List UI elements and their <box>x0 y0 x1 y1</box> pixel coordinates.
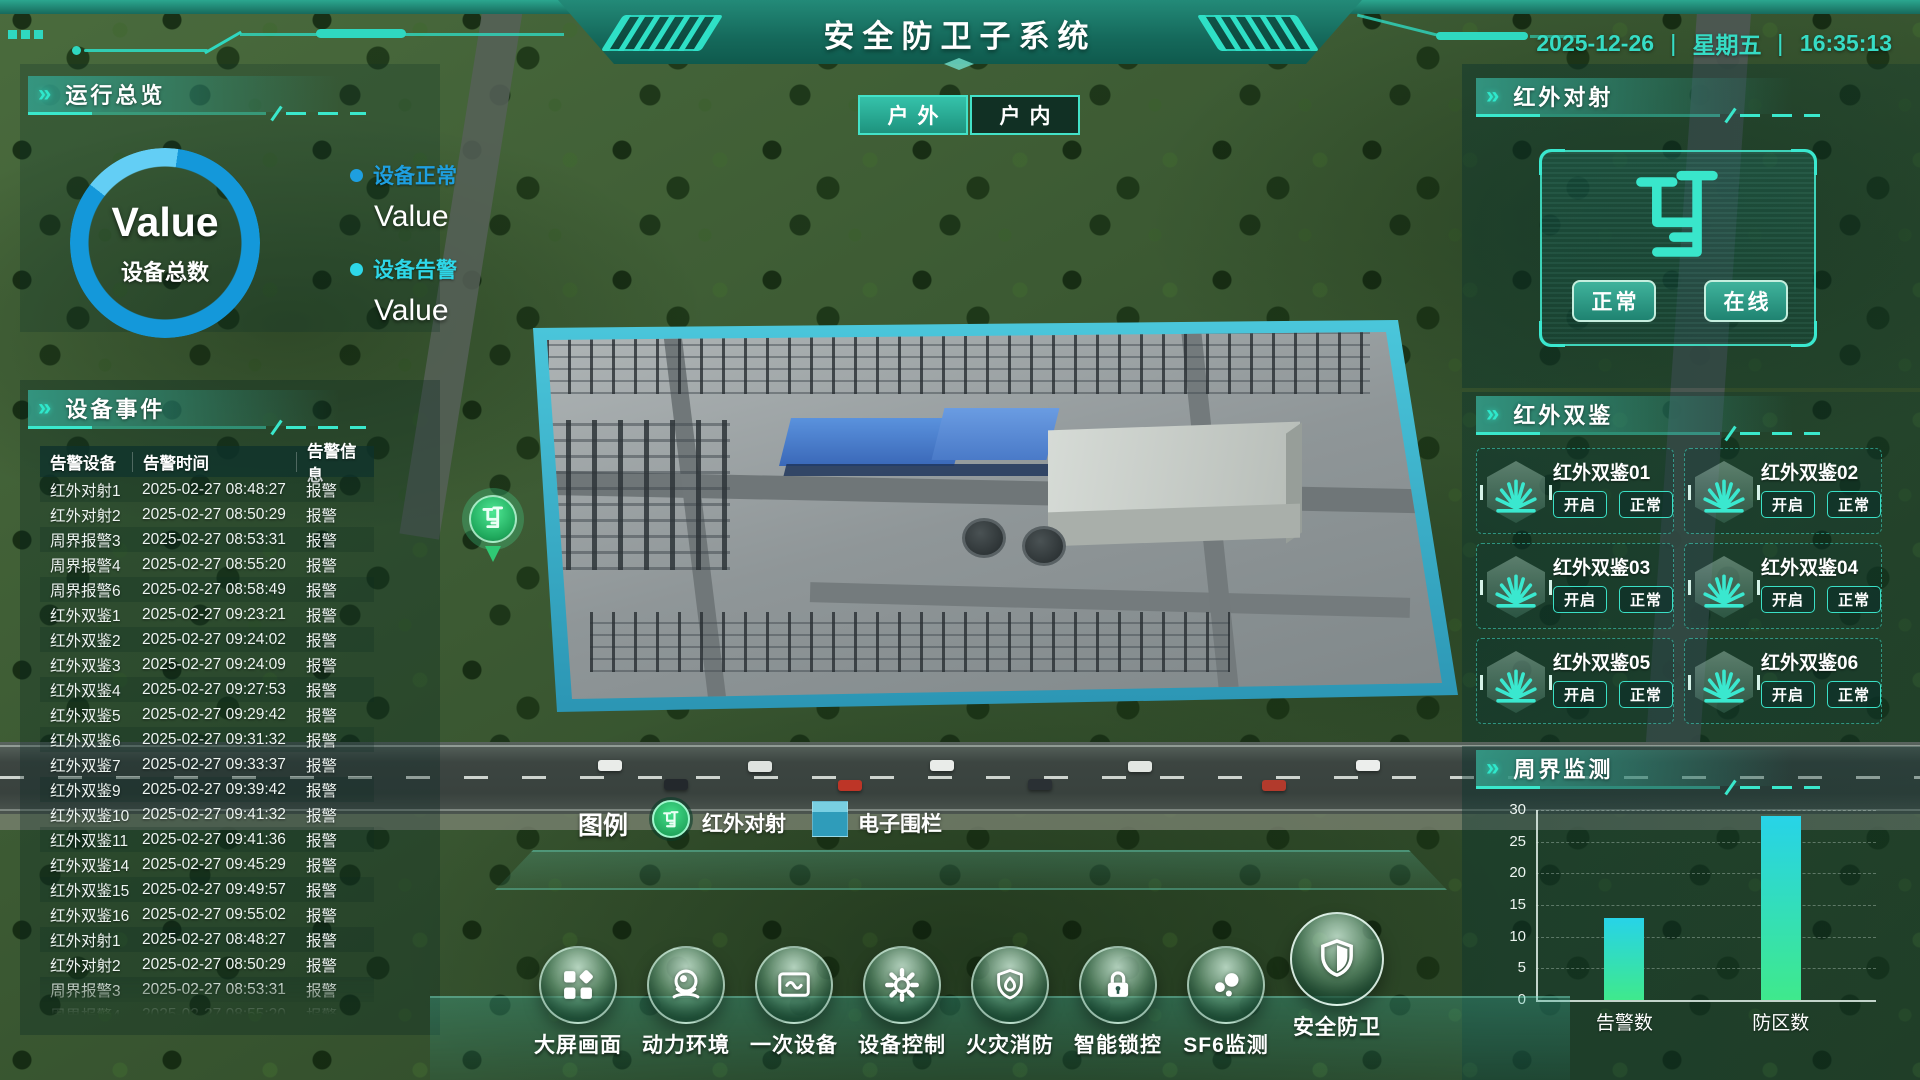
x-category-label: 告警数 <box>1574 1008 1674 1035</box>
table-row[interactable]: 周界报警42025-02-27 08:55:20报警 <box>40 552 374 577</box>
nav-item-sf6[interactable]: SF6监测 <box>1171 946 1281 1059</box>
dual-sensor-icon <box>1695 556 1753 618</box>
yard-pavement <box>500 300 1480 730</box>
car <box>1262 780 1286 791</box>
nav-item-label: 动力环境 <box>631 1029 741 1059</box>
detector-buttons: 开启正常 <box>1553 681 1673 708</box>
date-text: 2025-12-26 <box>1536 30 1654 57</box>
beam-device-card[interactable]: 正常 在线 <box>1540 150 1816 346</box>
dual-sensor-icon <box>1695 461 1753 523</box>
detector-name: 红外双鉴04 <box>1761 553 1858 580</box>
table-row[interactable]: 红外对射12025-02-27 08:48:27报警 <box>40 477 374 502</box>
alarm-message: 报警 <box>296 979 366 1001</box>
alarm-message: 报警 <box>296 729 366 751</box>
grid-icon <box>539 946 617 1024</box>
alarm-time: 2025-02-27 09:41:32 <box>132 806 296 824</box>
weekday-text: 星期五 <box>1692 26 1761 60</box>
alarm-time: 2025-02-27 09:27:53 <box>132 681 296 699</box>
legend-item-beam[interactable]: 红外对射 <box>702 808 786 838</box>
gridline <box>1536 873 1876 874</box>
open-button[interactable]: 开启 <box>1553 681 1607 708</box>
camera-icon <box>647 946 725 1024</box>
detector-buttons: 开启正常 <box>1761 681 1881 708</box>
chevron-icon: » <box>1486 402 1499 426</box>
events-table-header: 告警设备 告警时间 告警信息 <box>40 446 374 477</box>
panel-dual-detect: » 红外双鉴 <box>1476 396 1820 432</box>
alarm-device: 周界报警3 <box>40 529 132 551</box>
alarm-device: 周界报警4 <box>40 554 132 576</box>
y-tick-label: 15 <box>1496 896 1526 913</box>
alarm-device: 红外双鉴3 <box>40 654 132 676</box>
alarm-message: 报警 <box>296 1004 366 1016</box>
stat-bullet-0 <box>350 169 363 182</box>
chart-bar[interactable] <box>1604 918 1644 1000</box>
y-tick-label: 20 <box>1496 864 1526 881</box>
stat-value: Value <box>374 294 457 328</box>
alarm-message: 报警 <box>296 829 366 851</box>
table-row[interactable]: 红外双鉴142025-02-27 09:45:29报警 <box>40 852 374 877</box>
dual-detector-card[interactable]: 红外双鉴02开启正常 <box>1684 448 1882 534</box>
dual-sensor-icon <box>1487 556 1545 618</box>
alarm-message: 报警 <box>296 504 366 526</box>
status-button[interactable]: 正常 <box>1619 491 1673 518</box>
alarm-device: 红外双鉴15 <box>40 879 132 901</box>
alarm-message: 报警 <box>296 479 366 501</box>
corner-square-icon <box>8 30 17 39</box>
blue-roof-building-2 <box>932 408 1060 460</box>
nav-item-fire[interactable]: 火灾消防 <box>955 946 1065 1059</box>
table-row[interactable]: 红外双鉴42025-02-27 09:27:53报警 <box>40 677 374 702</box>
nav-item-label: 大屏画面 <box>523 1029 633 1059</box>
table-row[interactable]: 红外对射12025-02-27 08:48:27报警 <box>40 927 374 952</box>
gridline <box>1536 810 1876 811</box>
y-tick-label: 30 <box>1496 801 1526 818</box>
dual-grid: 红外双鉴01开启正常红外双鉴02开启正常红外双鉴03开启正常红外双鉴04开启正常… <box>1476 448 1882 728</box>
table-row[interactable]: 红外双鉴62025-02-27 09:31:32报警 <box>40 727 374 752</box>
time-text: 16:35:13 <box>1800 30 1892 57</box>
frame-icon <box>755 946 833 1024</box>
dual-detector-card[interactable]: 红外双鉴04开启正常 <box>1684 543 1882 629</box>
panel-underline <box>28 426 366 429</box>
nav-item-shield[interactable]: 安全防卫 <box>1282 912 1392 1041</box>
dual-sensor-icon <box>1695 651 1753 713</box>
car <box>598 760 622 771</box>
alarm-message: 报警 <box>296 779 366 801</box>
alarm-device: 红外双鉴16 <box>40 904 132 926</box>
y-tick-label: 10 <box>1496 928 1526 945</box>
car <box>664 779 688 790</box>
chevron-icon: » <box>1486 756 1499 780</box>
nav-item-label: SF6监测 <box>1171 1029 1281 1059</box>
alarm-time: 2025-02-27 08:48:27 <box>132 931 296 949</box>
alarm-message: 报警 <box>296 754 366 776</box>
panel-title: 红外双鉴 <box>1513 398 1613 430</box>
status-button[interactable]: 正常 <box>1619 586 1673 613</box>
alarm-device: 红外双鉴9 <box>40 779 132 801</box>
alarm-time: 2025-02-27 08:55:20 <box>132 556 296 574</box>
alarm-time: 2025-02-27 09:24:09 <box>132 656 296 674</box>
status-button[interactable]: 正常 <box>1827 586 1881 613</box>
datetime: 2025-12-26 | 星期五 | 16:35:13 <box>1536 26 1892 60</box>
alarm-time: 2025-02-27 08:48:27 <box>132 481 296 499</box>
panel-overview: » 运行总览 <box>28 76 366 112</box>
legend-item-fence[interactable]: 电子围栏 <box>858 808 942 838</box>
legend-title: 图例 <box>578 806 628 842</box>
equipment-transformers <box>540 420 730 570</box>
corner-accent <box>1791 149 1817 175</box>
transformer-icon <box>962 518 1006 558</box>
stat-label-1: 设备告警 <box>373 254 457 284</box>
alarm-time: 2025-02-27 09:31:32 <box>132 731 296 749</box>
corner-accent <box>1539 321 1565 347</box>
detector-name: 红外双鉴02 <box>1761 458 1858 485</box>
alarm-device: 红外双鉴14 <box>40 854 132 876</box>
corner-square-icon <box>34 30 43 39</box>
marker-pointer <box>485 546 501 562</box>
table-row[interactable]: 红外双鉴32025-02-27 09:24:09报警 <box>40 652 374 677</box>
legend-fence-swatch[interactable] <box>812 801 848 837</box>
alarm-device: 周界报警4 <box>40 1004 132 1016</box>
nav-item-label: 一次设备 <box>739 1029 849 1059</box>
events-table-body[interactable]: 红外对射12025-02-27 08:48:27报警红外对射22025-02-2… <box>40 477 374 1015</box>
alarm-time: 2025-02-27 09:41:36 <box>132 831 296 849</box>
transformer-icon <box>1022 526 1066 566</box>
x-category-label: 防区数 <box>1731 1008 1831 1035</box>
open-button[interactable]: 开启 <box>1761 681 1815 708</box>
detector-name: 红外双鉴06 <box>1761 648 1858 675</box>
dual-detector-card[interactable]: 红外双鉴06开启正常 <box>1684 638 1882 724</box>
panel-title: 设备事件 <box>65 392 165 424</box>
detector-name: 红外双鉴03 <box>1553 553 1650 580</box>
table-row[interactable]: 红外双鉴72025-02-27 09:33:37报警 <box>40 752 374 777</box>
alarm-message: 报警 <box>296 879 366 901</box>
sf6-icon <box>1187 946 1265 1024</box>
white-building <box>1048 422 1300 519</box>
gridline <box>1536 937 1876 938</box>
alarm-time: 2025-02-27 08:53:31 <box>132 981 296 999</box>
alarm-time: 2025-02-27 08:53:31 <box>132 531 296 549</box>
alarm-message: 报警 <box>296 954 366 976</box>
nav-item-lock[interactable]: 智能锁控 <box>1063 946 1173 1059</box>
x-axis <box>1536 1000 1876 1002</box>
nav-item-label: 设备控制 <box>847 1029 957 1059</box>
table-row[interactable]: 红外双鉴152025-02-27 09:49:57报警 <box>40 877 374 902</box>
tab-outdoor[interactable]: 户外 <box>858 95 968 135</box>
nav-item-label: 安全防卫 <box>1282 1011 1392 1041</box>
alarm-message: 报警 <box>296 679 366 701</box>
panel-title: 运行总览 <box>65 78 165 110</box>
gear-icon <box>863 946 941 1024</box>
dual-sensor-icon <box>1487 651 1545 713</box>
detector-buttons: 开启正常 <box>1761 586 1881 613</box>
alarm-message: 报警 <box>296 604 366 626</box>
alarm-message: 报警 <box>296 804 366 826</box>
alarm-message: 报警 <box>296 529 366 551</box>
table-row[interactable]: 红外对射22025-02-27 08:50:29报警 <box>40 952 374 977</box>
table-row[interactable]: 周界报警32025-02-27 08:53:31报警 <box>40 977 374 1002</box>
marker-circle <box>469 495 517 543</box>
table-row[interactable]: 红外双鉴102025-02-27 09:41:32报警 <box>40 802 374 827</box>
chart-bar[interactable] <box>1761 816 1801 1000</box>
panel-underline <box>1476 432 1820 435</box>
alarm-device: 红外双鉴7 <box>40 754 132 776</box>
nav-item-label: 火灾消防 <box>955 1029 1065 1059</box>
panel-underline <box>1476 114 1820 117</box>
gridline <box>1536 905 1876 906</box>
corner-square-icon <box>21 30 30 39</box>
nav-item-grid[interactable]: 大屏画面 <box>523 946 633 1059</box>
alarm-time: 2025-02-27 08:50:29 <box>132 956 296 974</box>
alarm-device: 周界报警3 <box>40 979 132 1001</box>
car <box>838 780 862 791</box>
fire-icon <box>971 946 1049 1024</box>
car <box>1356 760 1380 771</box>
panel-title: 红外对射 <box>1513 80 1613 112</box>
table-row[interactable]: 红外双鉴162025-02-27 09:55:02报警 <box>40 902 374 927</box>
alarm-message: 报警 <box>296 904 366 926</box>
nav-item-frame[interactable]: 一次设备 <box>739 946 849 1059</box>
gridline <box>1536 842 1876 843</box>
alarm-time: 2025-02-27 09:39:42 <box>132 781 296 799</box>
beam-icon <box>480 505 506 534</box>
car <box>748 761 772 772</box>
corner-accent <box>1791 321 1817 347</box>
table-row[interactable]: 红外双鉴22025-02-27 09:24:02报警 <box>40 627 374 652</box>
panel-events: » 设备事件 <box>28 390 366 426</box>
table-row[interactable]: 周界报警42025-02-27 08:55:20报警 <box>40 1002 374 1015</box>
alarm-time: 2025-02-27 09:55:02 <box>132 906 296 924</box>
alarm-message: 报警 <box>296 704 366 726</box>
chevron-icon: » <box>1486 84 1499 108</box>
lock-icon <box>1079 946 1157 1024</box>
y-axis <box>1536 810 1538 1000</box>
alarm-device: 红外对射1 <box>40 479 132 501</box>
alarm-time: 2025-02-27 09:49:57 <box>132 881 296 899</box>
column-header: 告警设备 <box>40 450 132 474</box>
alarm-time: 2025-02-27 09:29:42 <box>132 706 296 724</box>
nav-item-label: 智能锁控 <box>1063 1029 1173 1059</box>
alarm-device: 红外对射2 <box>40 504 132 526</box>
alarm-device: 周界报警6 <box>40 579 132 601</box>
dual-detector-card[interactable]: 红外双鉴03开启正常 <box>1476 543 1674 629</box>
open-button[interactable]: 开启 <box>1553 586 1607 613</box>
dashboard: 安全防卫子系统 2025-12-26 | 星期五 | 16:35:13 户外 户… <box>0 0 1920 1080</box>
car <box>1028 779 1052 790</box>
tab-indoor[interactable]: 户内 <box>970 95 1080 135</box>
detector-buttons: 开启正常 <box>1553 491 1673 518</box>
car <box>1128 761 1152 772</box>
stat-label-0: 设备正常 <box>373 160 457 190</box>
table-row[interactable]: 周界报警32025-02-27 08:53:31报警 <box>40 527 374 552</box>
column-header: 告警信息 <box>296 452 366 472</box>
panel-underline <box>28 112 366 115</box>
chevron-icon: » <box>38 396 51 420</box>
decor-pill <box>316 29 406 38</box>
alarm-time: 2025-02-27 08:55:20 <box>132 1006 296 1016</box>
corner-accent <box>1539 149 1565 175</box>
panel-underline <box>1476 786 1820 789</box>
status-button[interactable]: 正常 <box>1619 681 1673 708</box>
alarm-message: 报警 <box>296 654 366 676</box>
panel-perimeter: » 周界监测 <box>1476 750 1820 786</box>
panel-title: 周界监测 <box>1513 752 1613 784</box>
panel-infrared-beam: » 红外对射 <box>1476 78 1820 114</box>
gauge-label: 设备总数 <box>121 255 209 287</box>
substation-yard <box>500 300 1480 730</box>
alarm-device: 红外双鉴10 <box>40 804 132 826</box>
gauge-center: Value 设备总数 <box>70 148 260 338</box>
table-row[interactable]: 红外双鉴52025-02-27 09:29:42报警 <box>40 702 374 727</box>
alarm-message: 报警 <box>296 629 366 651</box>
decor-pill <box>1436 32 1528 40</box>
alarm-time: 2025-02-27 08:58:49 <box>132 581 296 599</box>
column-header: 告警时间 <box>132 452 296 472</box>
table-row[interactable]: 红外双鉴12025-02-27 09:23:21报警 <box>40 602 374 627</box>
alarm-device: 红外双鉴5 <box>40 704 132 726</box>
alarm-time: 2025-02-27 09:33:37 <box>132 756 296 774</box>
nav-item-gear[interactable]: 设备控制 <box>847 946 957 1059</box>
alarm-time: 2025-02-27 09:23:21 <box>132 606 296 624</box>
equipment-row-top <box>524 330 1370 394</box>
decor-dot <box>72 46 81 55</box>
dual-sensor-icon <box>1487 461 1545 523</box>
gridline <box>1536 968 1876 969</box>
alarm-device: 红外双鉴11 <box>40 829 132 851</box>
y-tick-label: 5 <box>1496 959 1526 976</box>
detector-name: 红外双鉴01 <box>1553 458 1650 485</box>
table-row[interactable]: 红外双鉴112025-02-27 09:41:36报警 <box>40 827 374 852</box>
alarm-device: 红外对射1 <box>40 929 132 951</box>
alarm-time: 2025-02-27 08:50:29 <box>132 506 296 524</box>
status-button[interactable]: 正常 <box>1827 681 1881 708</box>
open-button[interactable]: 开启 <box>1761 586 1815 613</box>
table-row[interactable]: 红外双鉴92025-02-27 09:39:42报警 <box>40 777 374 802</box>
legend-beam-pin-icon[interactable] <box>652 800 690 838</box>
view-tabs: 户外 户内 <box>858 95 1080 135</box>
separator: | <box>1778 30 1783 57</box>
alarm-device: 红外双鉴6 <box>40 729 132 751</box>
detector-buttons: 开启正常 <box>1761 491 1881 518</box>
alarm-device: 红外双鉴4 <box>40 679 132 701</box>
shield-icon <box>1290 912 1384 1006</box>
alarm-message: 报警 <box>296 929 366 951</box>
equipment-row-bottom <box>590 612 1230 672</box>
stat-bullet-1 <box>350 263 363 276</box>
alarm-message: 报警 <box>296 854 366 876</box>
dual-detector-card[interactable]: 红外双鉴01开启正常 <box>1476 448 1674 534</box>
stat-device-alarm: 设备告警 Value <box>350 254 457 328</box>
glass-platform <box>495 850 1447 890</box>
chevron-icon: » <box>38 82 51 106</box>
nav-item-camera[interactable]: 动力环境 <box>631 946 741 1059</box>
decor-line <box>84 49 208 52</box>
status-button[interactable]: 正常 <box>1827 491 1881 518</box>
infrared-beam-icon <box>1625 164 1731 264</box>
alarm-message: 报警 <box>296 554 366 576</box>
separator: | <box>1671 30 1676 57</box>
alarm-time: 2025-02-27 09:24:02 <box>132 631 296 649</box>
car <box>930 760 954 771</box>
stat-value: Value <box>374 200 457 234</box>
alarm-device: 红外双鉴1 <box>40 604 132 626</box>
stat-device-normal: 设备正常 Value <box>350 160 457 234</box>
alarm-time: 2025-02-27 09:45:29 <box>132 856 296 874</box>
table-row[interactable]: 周界报警62025-02-27 08:58:49报警 <box>40 577 374 602</box>
detector-name: 红外双鉴05 <box>1553 648 1650 675</box>
y-tick-label: 25 <box>1496 833 1526 850</box>
table-row[interactable]: 红外对射22025-02-27 08:50:29报警 <box>40 502 374 527</box>
alarm-device: 红外对射2 <box>40 954 132 976</box>
open-button[interactable]: 开启 <box>1761 491 1815 518</box>
beam-status-button[interactable]: 正常 <box>1572 280 1656 322</box>
alarm-message: 报警 <box>296 579 366 601</box>
gauge-value: Value <box>111 199 218 246</box>
beam-map-marker[interactable] <box>462 488 524 568</box>
dual-detector-card[interactable]: 红外双鉴05开启正常 <box>1476 638 1674 724</box>
detector-buttons: 开启正常 <box>1553 586 1673 613</box>
beam-online-button[interactable]: 在线 <box>1704 280 1788 322</box>
open-button[interactable]: 开启 <box>1553 491 1607 518</box>
alarm-device: 红外双鉴2 <box>40 629 132 651</box>
